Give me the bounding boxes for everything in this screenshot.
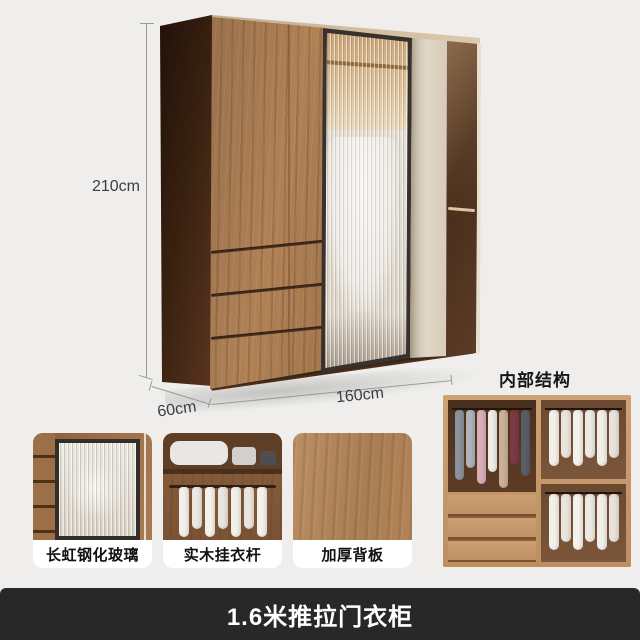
cabinet-edge-line: [144, 433, 146, 540]
product-showcase: 210cm 60cm 160cm 内部结构: [0, 0, 640, 640]
back-panel-image: [293, 433, 412, 540]
hanging-rod-image: [163, 433, 282, 540]
hanging-clothes: [455, 400, 530, 492]
fluted-glass-pane: [59, 443, 136, 536]
feature-card-rod: 实木挂衣杆: [163, 433, 282, 568]
feature-label-rod: 实木挂衣杆: [163, 540, 282, 568]
interior-right-top-hanging-area: [541, 400, 626, 479]
hanging-clothes: [169, 487, 276, 537]
interior-left-section: [448, 400, 536, 562]
interior-drawers: [448, 495, 536, 562]
hanging-clothes: [549, 484, 619, 563]
drawer-groove: [211, 326, 323, 340]
shelf-board: [163, 469, 282, 474]
feature-card-back: 加厚背板: [293, 433, 412, 568]
hanging-rod: [545, 408, 622, 410]
bedding: [232, 447, 256, 465]
depth-dimension-label: 60cm: [151, 398, 203, 423]
fluted-glass-sliding-door: [318, 25, 415, 375]
product-title: 1.6米推拉门衣柜: [227, 597, 413, 632]
fluted-glass-pane: [318, 25, 415, 375]
fluted-stripes: [318, 25, 415, 375]
open-compartment: [446, 39, 479, 358]
open-compartment-rod: [448, 207, 475, 212]
right-sliding-door: [410, 36, 448, 359]
left-sliding-door: [210, 15, 325, 390]
wardrobe-right-edge: [477, 41, 481, 354]
drawer-groove: [211, 283, 323, 297]
wood-drawer-strip: [33, 433, 55, 540]
drawer: [448, 541, 536, 562]
interior-structure-title: 内部结构: [499, 366, 571, 391]
hanging-rod: [545, 492, 622, 494]
hanging-clothes: [549, 400, 619, 479]
height-dimension-line: [146, 24, 147, 378]
drawer: [448, 518, 536, 539]
drawer-groove: [211, 240, 323, 254]
drawer: [448, 495, 536, 516]
interior-left-hanging-area: [448, 400, 536, 492]
product-title-banner: 1.6米推拉门衣柜: [0, 588, 640, 640]
bedding: [170, 441, 228, 465]
interior-structure-image: [443, 395, 631, 567]
interior-right-bottom-hanging-area: [541, 484, 626, 563]
fluted-glass-image: [33, 433, 152, 540]
feature-card-glass: 长虹钢化玻璃: [33, 433, 152, 568]
feature-label-back: 加厚背板: [293, 540, 412, 568]
height-dimension-label: 210cm: [88, 178, 140, 196]
top-shelf: [163, 433, 282, 469]
feature-card-row: 长虹钢化玻璃 实木挂衣杆 加厚背板: [33, 433, 412, 568]
height-dimension-tick-top: [140, 23, 154, 24]
feature-label-glass: 长虹钢化玻璃: [33, 540, 152, 568]
hanging-rod: [452, 408, 532, 410]
wardrobe-side-panel: [160, 13, 212, 388]
storage-box: [260, 451, 276, 465]
interior-right-section: [541, 400, 626, 562]
